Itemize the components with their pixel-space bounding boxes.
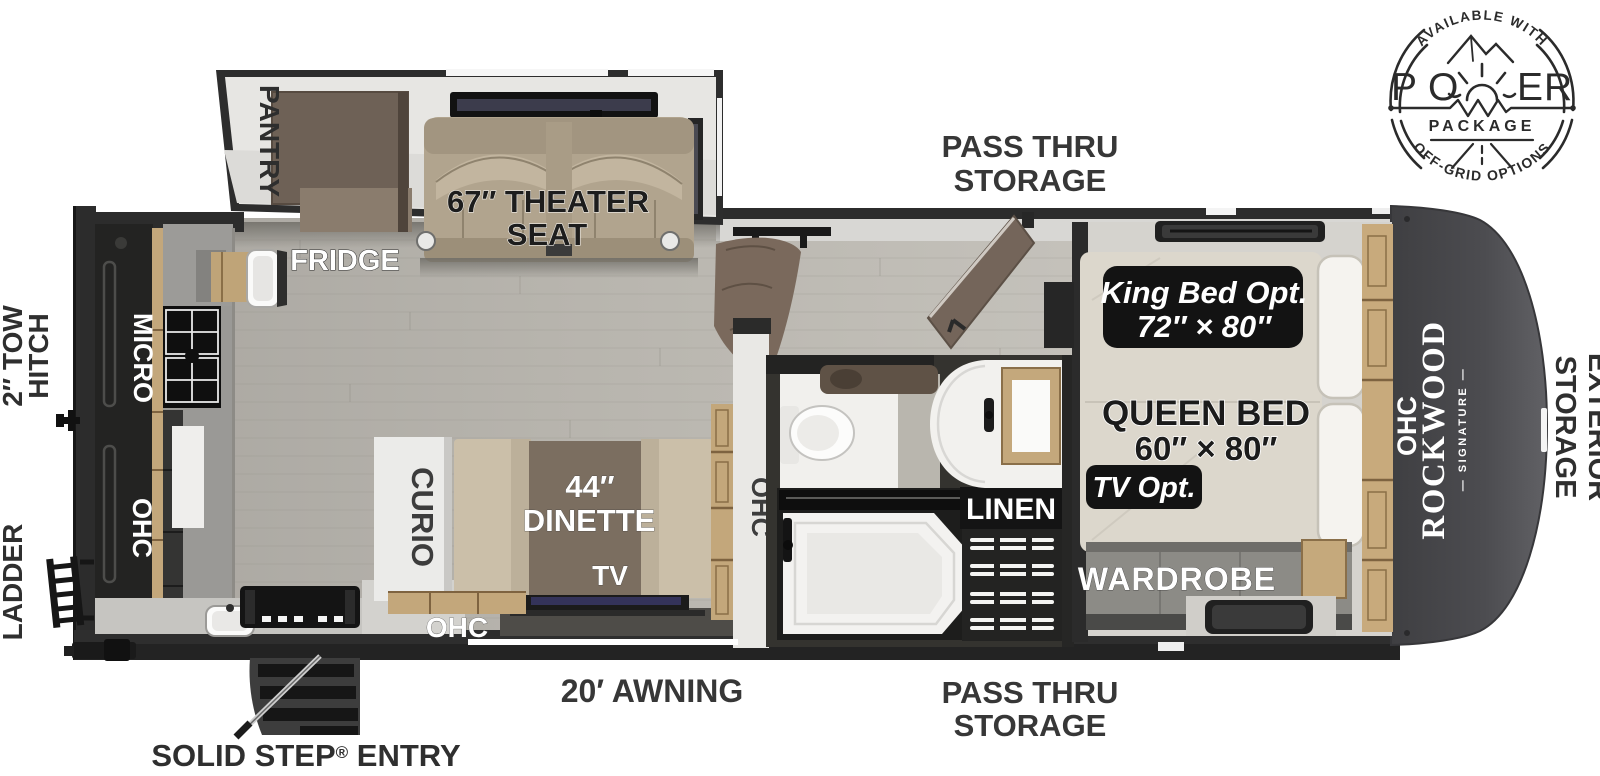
svg-text:FRIDGE: FRIDGE	[290, 245, 400, 277]
svg-text:TV: TV	[592, 560, 628, 591]
svg-text:R: R	[1544, 66, 1572, 109]
svg-text:OHC: OHC	[1392, 396, 1422, 456]
svg-text:O: O	[1428, 66, 1458, 109]
svg-text:SEAT: SEAT	[507, 217, 587, 252]
svg-text:60″ × 80″: 60″ × 80″	[1135, 430, 1278, 467]
svg-text:QUEEN BED: QUEEN BED	[1102, 394, 1310, 433]
svg-text:44″: 44″	[565, 469, 614, 504]
svg-text:CURIO: CURIO	[405, 467, 440, 567]
svg-text:OHC: OHC	[426, 612, 488, 643]
svg-text:PASS THRU: PASS THRU	[942, 675, 1119, 710]
svg-text:HITCH: HITCH	[23, 313, 54, 399]
svg-text:— SIGNATURE —: — SIGNATURE —	[1457, 367, 1469, 492]
svg-text:STORAGE: STORAGE	[954, 163, 1107, 198]
svg-text:WARDROBE: WARDROBE	[1078, 561, 1276, 597]
svg-text:STORAGE: STORAGE	[954, 708, 1107, 743]
svg-text:72″ × 80″: 72″ × 80″	[1137, 309, 1272, 344]
svg-text:LADDER: LADDER	[0, 524, 28, 641]
svg-text:STORAGE: STORAGE	[1549, 356, 1581, 499]
svg-text:MICRO: MICRO	[128, 313, 158, 403]
svg-text:EXTERIOR: EXTERIOR	[1582, 353, 1600, 501]
svg-text:PASS THRU: PASS THRU	[942, 129, 1119, 164]
svg-text:PACKAGE: PACKAGE	[1429, 118, 1536, 135]
svg-text:TV Opt.: TV Opt.	[1092, 472, 1195, 504]
svg-text:DINETTE: DINETTE	[523, 503, 656, 538]
svg-text:LINEN: LINEN	[966, 493, 1056, 526]
svg-text:20′ AWNING: 20′ AWNING	[561, 673, 744, 709]
svg-text:SOLID STEP® ENTRY: SOLID STEP® ENTRY	[151, 738, 461, 773]
svg-text:67″ THEATER: 67″ THEATER	[447, 184, 649, 219]
svg-text:E: E	[1517, 66, 1543, 109]
svg-text:PANTRY: PANTRY	[254, 85, 285, 197]
svg-text:King Bed Opt.: King Bed Opt.	[1101, 275, 1308, 310]
svg-text:OHC: OHC	[127, 498, 157, 558]
svg-text:P: P	[1391, 66, 1417, 109]
